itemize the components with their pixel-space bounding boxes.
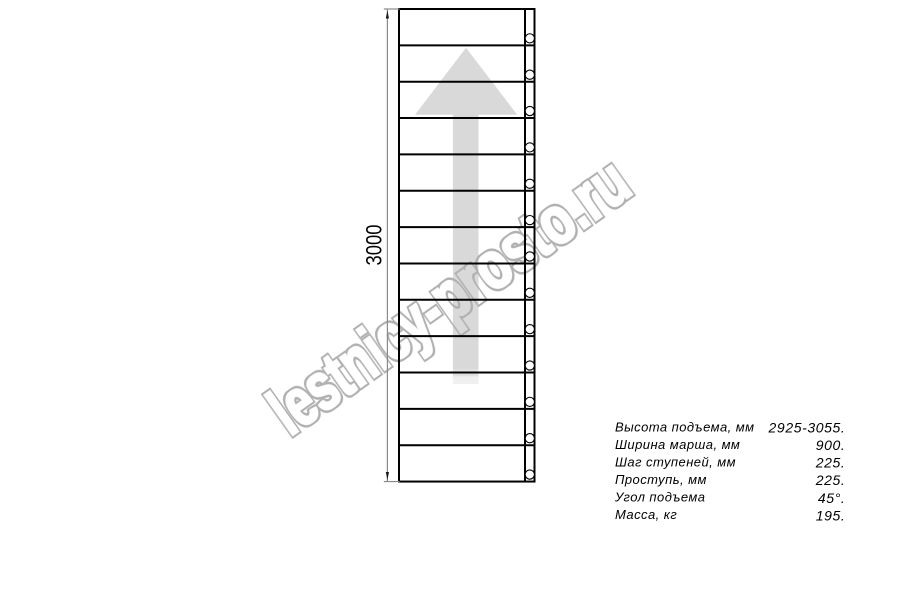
svg-text:225.: 225. xyxy=(815,455,846,471)
svg-text:Шаг ступеней, мм: Шаг ступеней, мм xyxy=(615,454,736,469)
svg-text:Масса, кг: Масса, кг xyxy=(615,507,677,522)
svg-text:3000: 3000 xyxy=(362,225,387,266)
svg-text:Высота подъема, мм: Высота подъема, мм xyxy=(615,419,755,434)
svg-text:Ширина марша, мм: Ширина марша, мм xyxy=(615,437,740,452)
svg-text:2925-3055.: 2925-3055. xyxy=(768,420,846,436)
svg-text:195.: 195. xyxy=(816,507,846,523)
svg-text:900.: 900. xyxy=(816,437,846,453)
svg-text:225.: 225. xyxy=(815,472,846,488)
svg-text:45°.: 45°. xyxy=(818,490,845,506)
svg-text:Проступь, мм: Проступь, мм xyxy=(615,472,707,487)
svg-text:Угол подъема: Угол подъема xyxy=(614,490,705,505)
